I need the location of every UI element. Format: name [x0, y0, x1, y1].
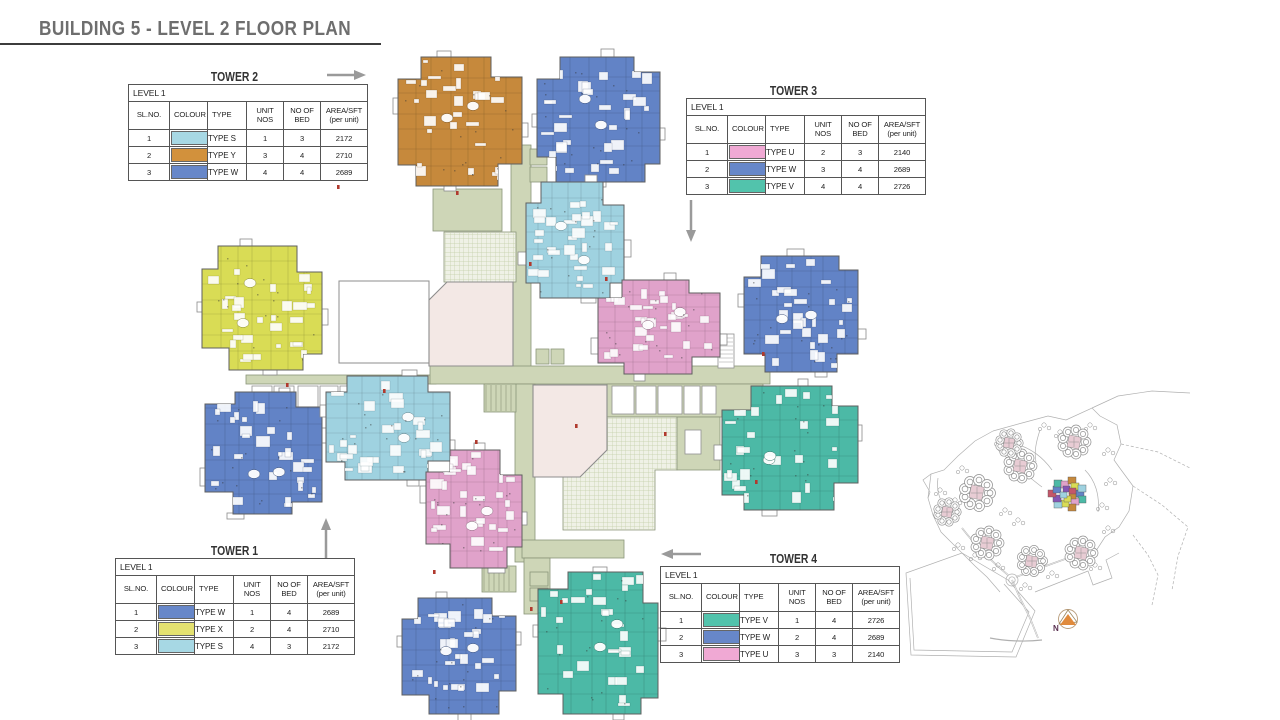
svg-text:N: N	[1053, 624, 1059, 633]
